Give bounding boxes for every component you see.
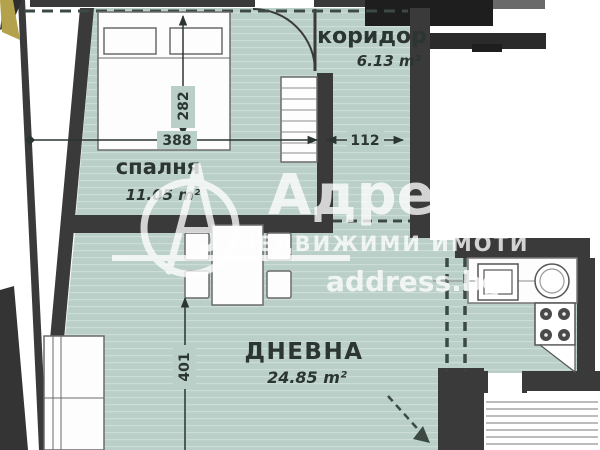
corridor-area: 6.13 m² (357, 52, 422, 70)
dim-401: 401 (177, 352, 193, 381)
watermark-website: address.bg (326, 265, 502, 298)
floorplan-svg: 388 112 282 401 коридор 6.13 m² спалня 1… (0, 0, 600, 450)
corridor-label: коридор (317, 24, 427, 49)
pillow (170, 28, 222, 54)
dim-112: 112 (350, 133, 379, 149)
watermark-brand: Адрес (268, 163, 468, 228)
floorplan-image: 388 112 282 401 коридор 6.13 m² спалня 1… (0, 0, 600, 450)
watermark-rule (112, 255, 350, 261)
bedroom-label: спалня (116, 155, 201, 179)
dim-388: 388 (162, 133, 191, 149)
watermark-tagline: НЕДВИЖИМИ ИМОТИ (238, 232, 530, 256)
chair (267, 271, 291, 298)
living-label: ДНЕВНА (244, 339, 363, 365)
living-area: 24.85 m² (267, 368, 347, 387)
balcony-door (486, 402, 598, 444)
wardrobe (281, 77, 317, 162)
pillow (104, 28, 156, 54)
stove (535, 303, 575, 345)
dim-282: 282 (176, 91, 192, 120)
